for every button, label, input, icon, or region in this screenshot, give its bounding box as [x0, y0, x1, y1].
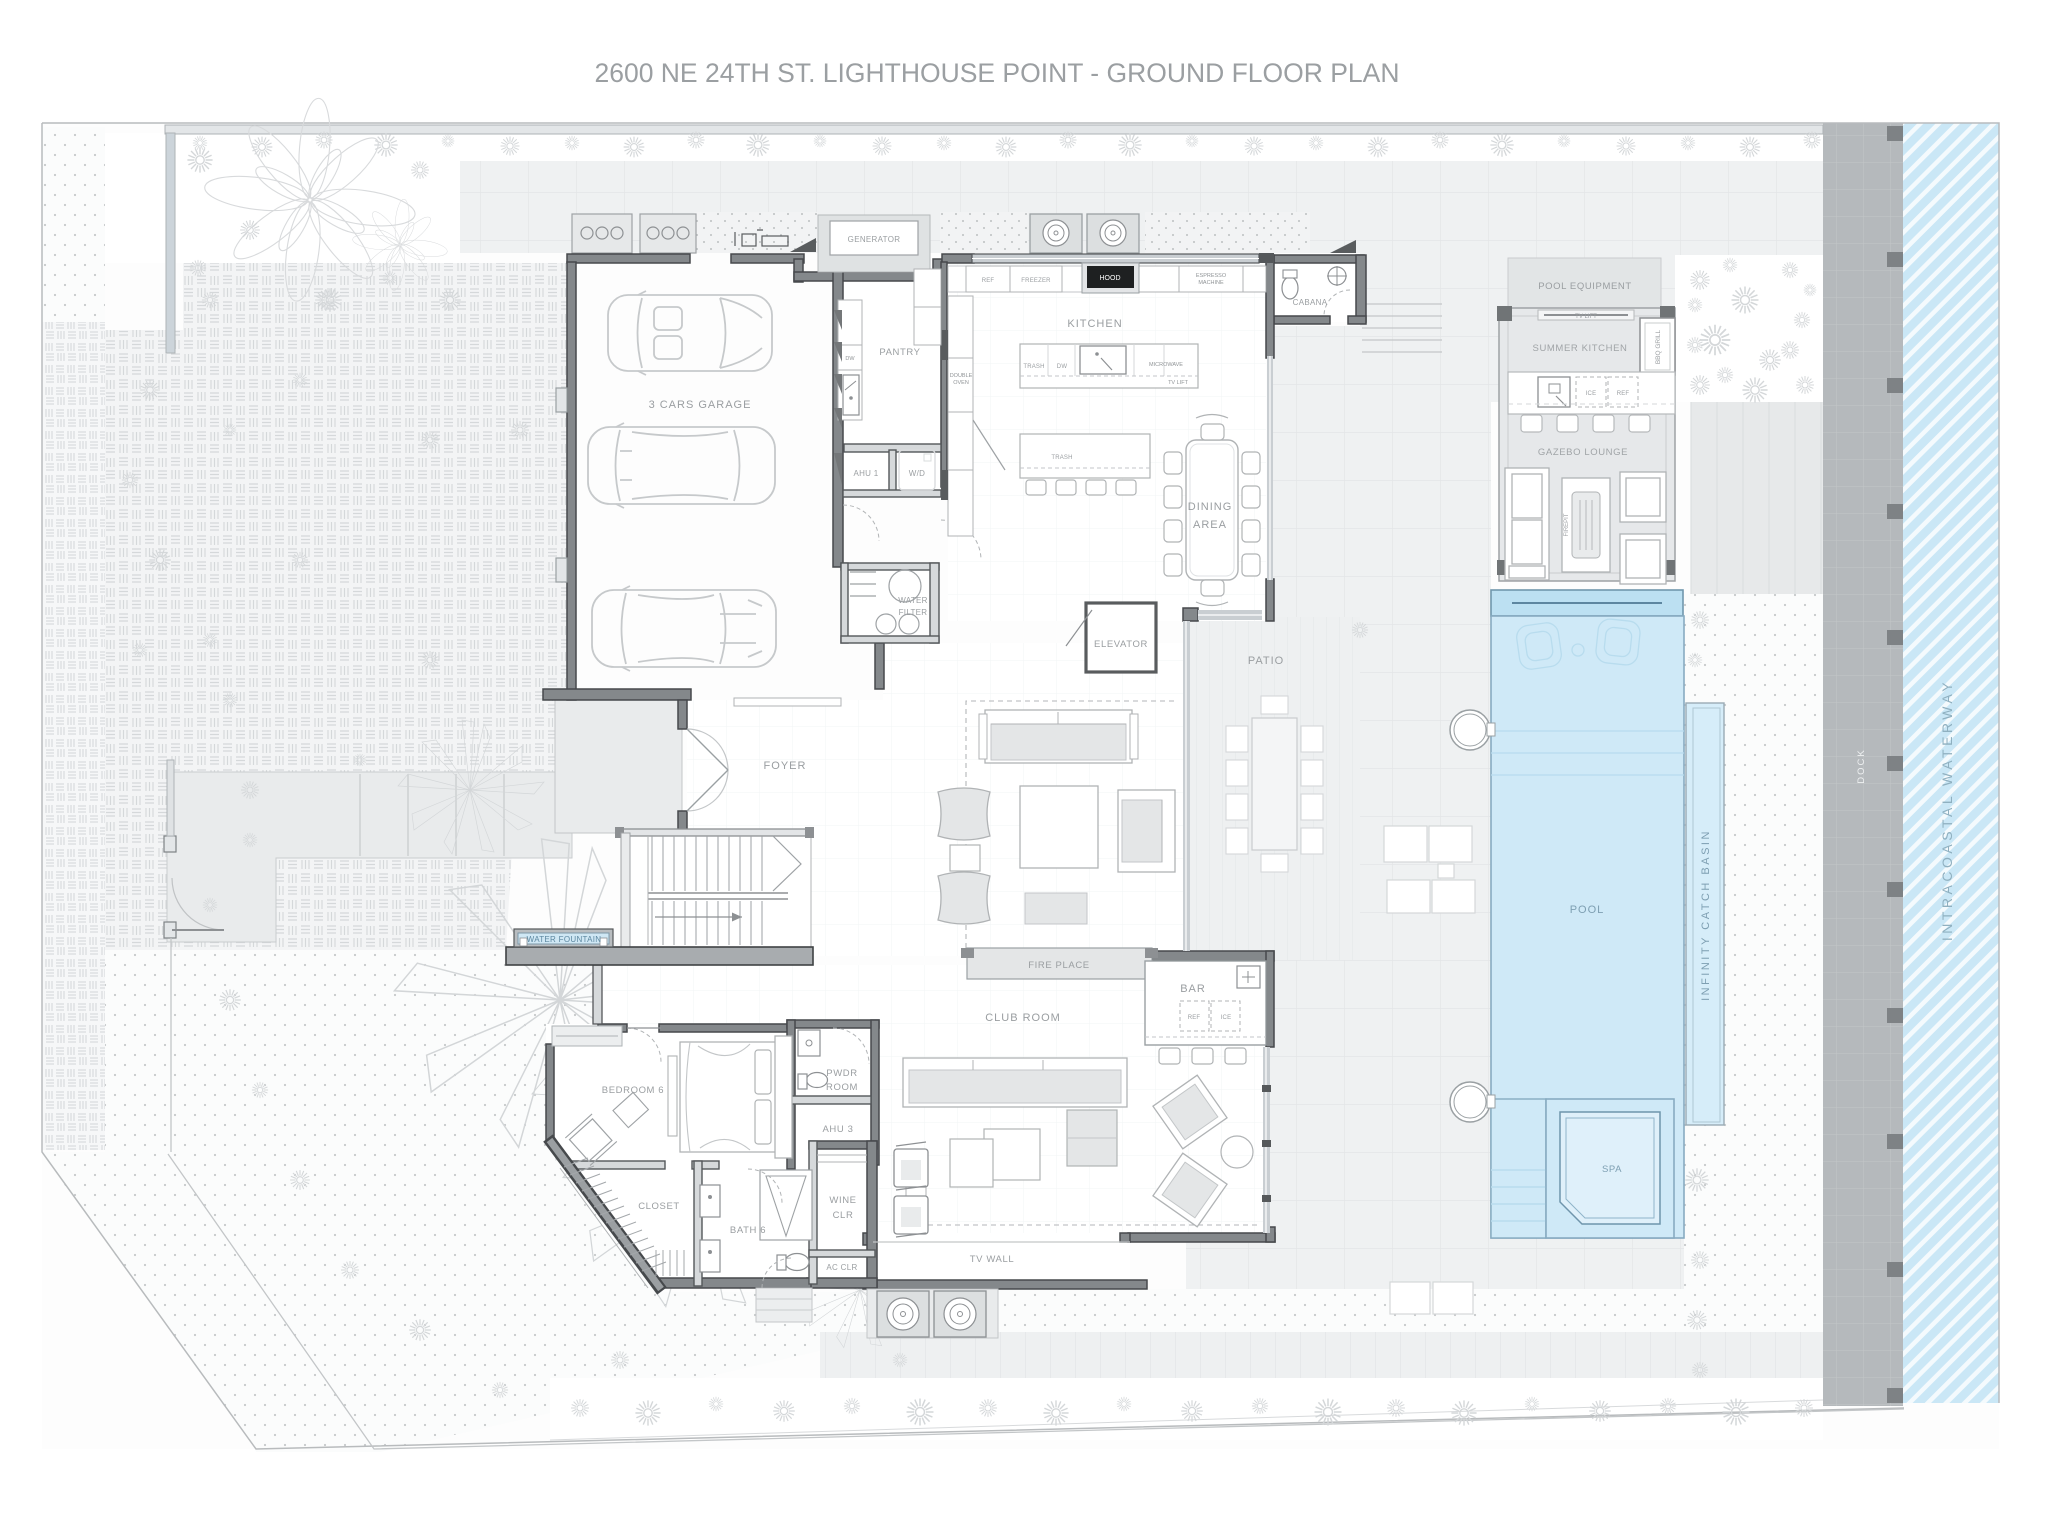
svg-text:AC CLR: AC CLR — [826, 1263, 857, 1272]
svg-text:CLUB ROOM: CLUB ROOM — [985, 1012, 1061, 1024]
svg-text:BAR: BAR — [1180, 983, 1206, 995]
svg-text:FIRE PLACE: FIRE PLACE — [1028, 960, 1089, 971]
svg-text:FOYER: FOYER — [764, 760, 807, 772]
svg-text:OVEN: OVEN — [953, 380, 969, 386]
svg-text:ROOM: ROOM — [826, 1082, 858, 1093]
svg-text:CLR: CLR — [833, 1210, 854, 1221]
svg-text:ICE: ICE — [1586, 391, 1597, 397]
svg-text:MACHINE: MACHINE — [1198, 280, 1224, 286]
svg-text:CABANA: CABANA — [1293, 298, 1328, 307]
svg-text:GENERATOR: GENERATOR — [848, 235, 901, 244]
svg-text:PWDR: PWDR — [826, 1068, 857, 1079]
svg-text:FIREPIT: FIREPIT — [1564, 513, 1570, 536]
svg-text:DW: DW — [845, 356, 855, 362]
svg-text:2600 NE 24TH ST. LIGHTHOUSE PO: 2600 NE 24TH ST. LIGHTHOUSE POINT - GROU… — [594, 58, 1399, 88]
svg-text:TV WALL: TV WALL — [970, 1254, 1015, 1265]
svg-text:FILTER: FILTER — [899, 608, 928, 617]
svg-text:DOCK: DOCK — [1856, 748, 1867, 783]
svg-text:DW: DW — [1057, 364, 1068, 370]
svg-text:PATIO: PATIO — [1248, 655, 1284, 667]
svg-text:AREA: AREA — [1193, 519, 1227, 531]
svg-text:AHU 1: AHU 1 — [853, 469, 878, 478]
svg-text:AHU 3: AHU 3 — [823, 1124, 854, 1135]
svg-text:ICE: ICE — [1221, 1015, 1232, 1021]
svg-text:BEDROOM 6: BEDROOM 6 — [602, 1085, 664, 1096]
svg-text:REF: REF — [1188, 1015, 1201, 1021]
svg-text:INFINITY CATCH BASIN: INFINITY CATCH BASIN — [1700, 829, 1712, 1001]
svg-text:POOL EQUIPMENT: POOL EQUIPMENT — [1538, 281, 1632, 292]
svg-text:TRASH: TRASH — [1023, 364, 1044, 370]
svg-text:FREEZER: FREEZER — [1021, 278, 1051, 284]
svg-text:TV LIFT: TV LIFT — [1168, 380, 1189, 386]
svg-text:SPA: SPA — [1602, 1164, 1622, 1175]
svg-text:HOOD: HOOD — [1100, 275, 1121, 282]
svg-text:TV LIFT: TV LIFT — [1575, 314, 1597, 320]
svg-text:3 CARS GARAGE: 3 CARS GARAGE — [649, 399, 752, 411]
svg-text:REF: REF — [1617, 391, 1630, 397]
svg-text:BATH 6: BATH 6 — [730, 1225, 766, 1236]
svg-text:DOUBLE: DOUBLE — [950, 373, 973, 379]
svg-text:SUMMER KITCHEN: SUMMER KITCHEN — [1533, 343, 1628, 354]
svg-text:INTRACOASTAL WATERWAY: INTRACOASTAL WATERWAY — [1939, 679, 1955, 941]
svg-text:GAZEBO LOUNGE: GAZEBO LOUNGE — [1538, 447, 1628, 458]
svg-text:TRASH: TRASH — [1051, 455, 1072, 461]
svg-text:W/D: W/D — [909, 469, 925, 478]
svg-text:WINE: WINE — [829, 1195, 856, 1206]
svg-text:KITCHEN: KITCHEN — [1067, 318, 1122, 330]
svg-text:DINING: DINING — [1188, 501, 1233, 513]
svg-text:POOL: POOL — [1570, 904, 1605, 916]
svg-text:WATER FOUNTAIN: WATER FOUNTAIN — [527, 935, 602, 944]
svg-text:ELEVATOR: ELEVATOR — [1094, 639, 1148, 650]
svg-text:WATER: WATER — [898, 596, 928, 605]
svg-text:PANTRY: PANTRY — [879, 347, 920, 358]
svg-text:ESPRESSO: ESPRESSO — [1196, 273, 1227, 279]
svg-text:MICROWAVE: MICROWAVE — [1149, 362, 1183, 368]
svg-text:BBQ GRILL: BBQ GRILL — [1655, 329, 1662, 364]
svg-text:REF: REF — [982, 278, 995, 284]
svg-text:CLOSET: CLOSET — [638, 1201, 680, 1212]
